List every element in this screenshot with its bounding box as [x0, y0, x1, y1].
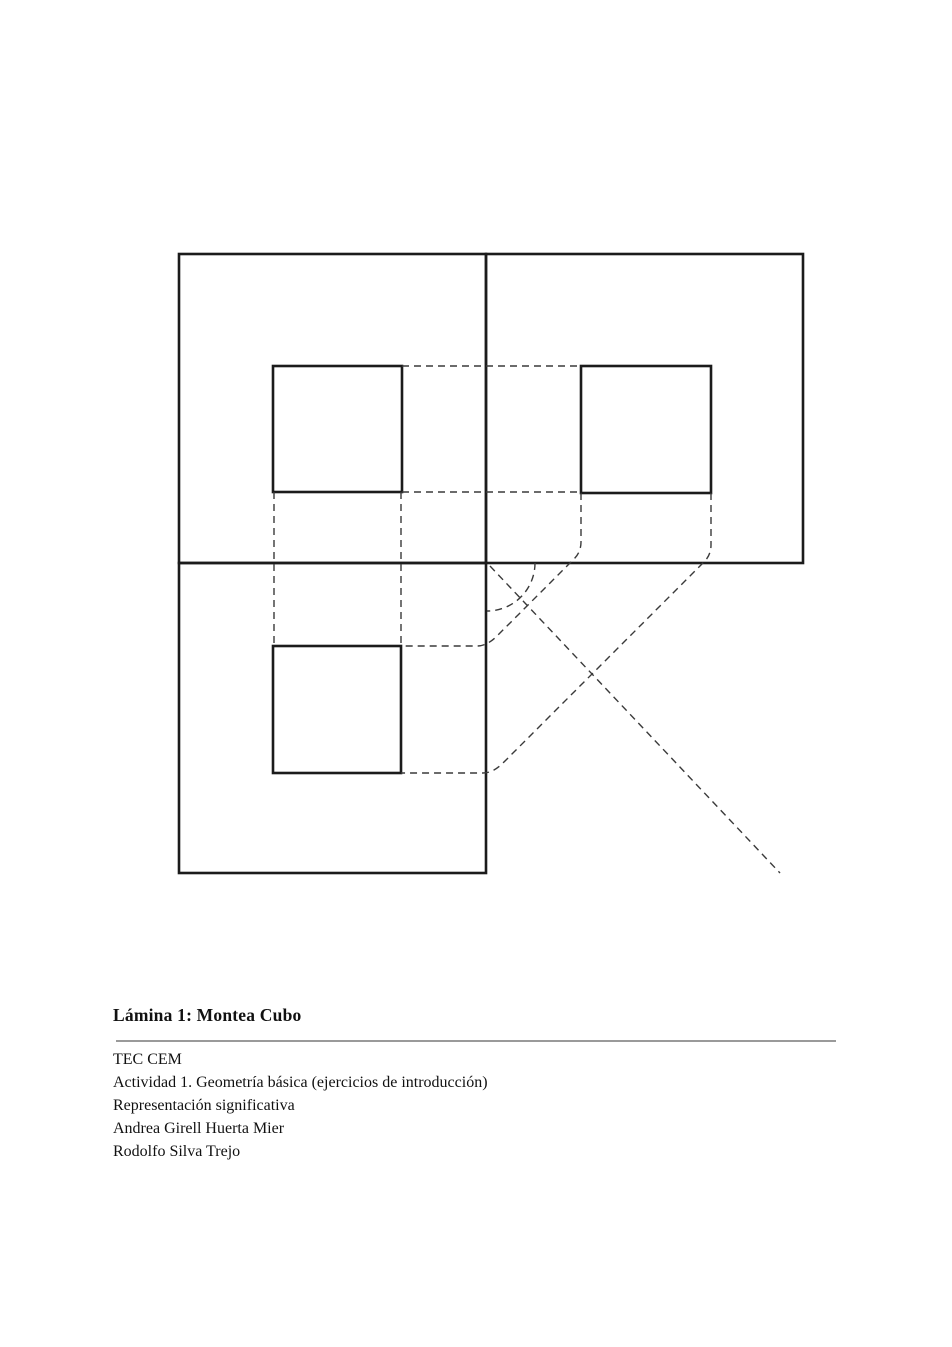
outer-rect-top-left-view [179, 254, 486, 563]
caption-line-author-1: Andrea Girell Huerta Mier [113, 1117, 488, 1140]
inner-square-bottom-left-view [273, 646, 401, 773]
document-page: Lámina 1: Montea Cubo TEC CEM Actividad … [0, 0, 952, 1347]
caption-block: TEC CEM Actividad 1. Geometría básica (e… [113, 1048, 488, 1163]
transfer-path-far-edge [401, 493, 711, 773]
caption-divider-rule [116, 1040, 836, 1042]
miter-diagonal-line [490, 566, 780, 873]
caption-line-institution: TEC CEM [113, 1048, 488, 1071]
inner-square-top-right-view [581, 366, 711, 493]
outer-rect-bottom-left-view [179, 563, 486, 873]
figure-title: Lámina 1: Montea Cubo [113, 1005, 301, 1026]
caption-line-activity: Actividad 1. Geometría básica (ejercicio… [113, 1071, 488, 1094]
inner-square-top-left-view [273, 366, 402, 492]
caption-line-description: Representación significativa [113, 1094, 488, 1117]
caption-line-author-2: Rodolfo Silva Trejo [113, 1140, 488, 1163]
transfer-path-near-edge [402, 493, 581, 646]
solid-lines-layer [179, 254, 803, 873]
dashed-lines-layer [274, 366, 780, 873]
outer-rect-top-right-view [486, 254, 803, 563]
